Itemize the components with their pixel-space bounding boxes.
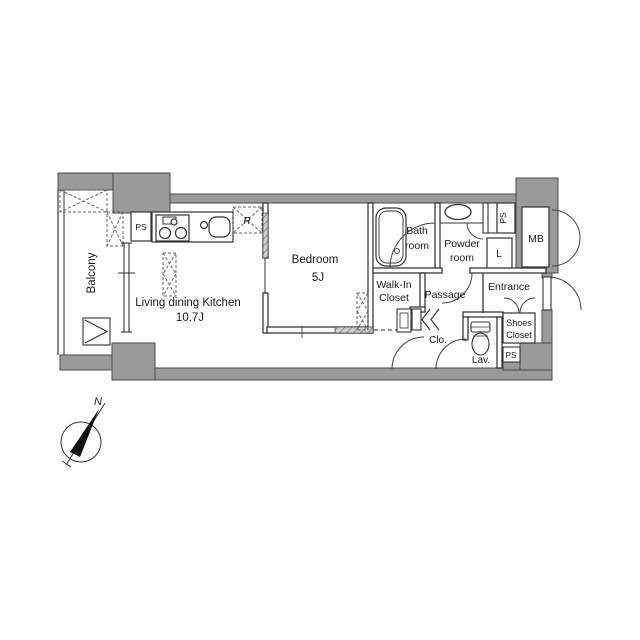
compass-needle-icon (70, 409, 99, 457)
stove-burner-icon (160, 228, 171, 239)
wall-lav-left (463, 317, 468, 340)
powder-label2: room (450, 252, 474, 264)
meter-box: MB (522, 207, 549, 267)
pipe-space-kitchen-label: PS (135, 222, 147, 232)
balcony: Balcony (58, 190, 135, 355)
entrance-label: Entrance (488, 281, 530, 293)
ldk-size-label: 10.7J (176, 312, 204, 324)
shoes-label: Shoes (506, 318, 532, 328)
front-door-arc (548, 277, 581, 310)
kitchen-counter (152, 212, 233, 242)
powder-room: Powder room PS L (440, 203, 515, 268)
ldk-label: Living dining Kitchen (135, 297, 241, 309)
escape-hatch-icon (83, 318, 110, 345)
wall-top-band (170, 194, 516, 203)
bedroom-size-label: 5J (312, 272, 324, 284)
floor-plan: Balcony PS R (0, 0, 640, 640)
shoes-door-arc-right (520, 298, 535, 313)
laundry-label: L (496, 249, 502, 260)
ldk-dashed-box (163, 253, 176, 296)
compass-tail-tick (62, 461, 71, 467)
compass: N (61, 396, 105, 467)
wic-label2: Closet (379, 292, 409, 304)
entrance: Entrance (488, 277, 551, 310)
wall-balcony-bottom (60, 355, 112, 370)
balcony-window (118, 243, 135, 332)
wic-label: Walk-In (376, 279, 411, 291)
bedroom-label: Bedroom (292, 254, 339, 266)
faucet-icon (201, 222, 208, 229)
bath-label2: room (405, 240, 429, 252)
refrigerator-label: R (243, 216, 250, 227)
passage: Passage (425, 273, 483, 313)
powder-label: Powder (444, 238, 480, 250)
wall-block-bottom-right (520, 343, 552, 370)
passage-label: Passage (425, 289, 466, 301)
stove-knob-icon (171, 219, 177, 225)
balcony-label: Balcony (86, 252, 98, 293)
wall-connector-block (112, 343, 155, 380)
sink-icon (209, 217, 230, 237)
ldk-door-arc (392, 337, 424, 369)
washer-space (483, 203, 497, 233)
washbasin-icon (445, 205, 471, 220)
ldk: PS R Living dining Kitchen 10.7J (131, 207, 262, 324)
wall-bottom (155, 368, 552, 380)
meter-box-label: MB (528, 233, 544, 245)
wall-pillar-top-left-step (113, 173, 170, 213)
lav-label: Lav. (472, 355, 490, 366)
pipe-space-entry-label: PS (506, 351, 517, 360)
toilet-icon (471, 322, 490, 355)
stove-burner-icon (176, 228, 187, 239)
bedroom: Bedroom 5J (292, 254, 368, 330)
clo-label: Clo. (429, 335, 447, 346)
wall-powder-bottom (470, 268, 546, 273)
compass-north-label: N (94, 396, 102, 408)
wall-bath-bottom (373, 268, 442, 273)
lavatory: Lav. (471, 322, 490, 366)
shoes-label2: Closet (506, 330, 532, 340)
shoes-door-arc-left (504, 298, 519, 313)
pipe-space-powder-label: PS (498, 212, 508, 224)
powder-counter-arc (467, 223, 483, 239)
wall-lav-right (497, 317, 502, 368)
front-door-leaf (543, 277, 551, 310)
bedroom-dashed-box (357, 293, 368, 330)
floor-plan-page: Balcony PS R (0, 0, 640, 640)
closet-door-panel (412, 309, 421, 330)
wall-bath-powder (435, 203, 440, 268)
wall-bedroom-right (368, 203, 373, 333)
